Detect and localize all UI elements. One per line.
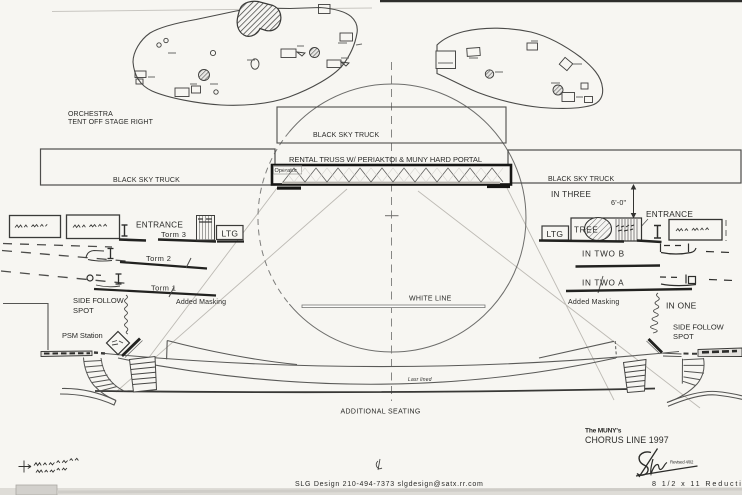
svg-text:SLG Design 210-494-7373 sl: SLG Design 210-494-7373 slgdesign@satx.r… [295, 481, 484, 488]
svg-text:CHORUS LINE 1997: CHORUS LINE 1997 [585, 435, 669, 445]
svg-text:TREE: TREE [574, 226, 599, 235]
svg-text:LTG: LTG [222, 229, 239, 239]
svg-text:ENTRANCE: ENTRANCE [646, 210, 693, 219]
svg-text:IN TWO A: IN TWO A [582, 279, 624, 288]
svg-text:Torm 3: Torm 3 [161, 230, 186, 239]
svg-text:IN TWO B: IN TWO B [582, 250, 625, 259]
svg-text:PSM Station: PSM Station [62, 331, 103, 340]
svg-text:IN THREE: IN THREE [551, 190, 591, 199]
svg-text:BLACK SKY TRUCK: BLACK SKY TRUCK [113, 177, 180, 184]
svg-text:Added Masking: Added Masking [176, 299, 226, 306]
svg-text:Added Masking: Added Masking [568, 299, 620, 306]
svg-text:SPOT: SPOT [673, 332, 694, 341]
svg-text:SIDE FOLLOW: SIDE FOLLOW [73, 296, 125, 305]
svg-text:The MUNY's: The MUNY's [585, 428, 622, 435]
svg-text:BLACK SKY TRUCK: BLACK SKY TRUCK [313, 132, 379, 139]
svg-text:TENT OFF STAGE RIGHT: TENT OFF STAGE RIGHT [68, 119, 154, 126]
svg-text:RENTAL TRUSS W/ PERIAKTOI & M: RENTAL TRUSS W/ PERIAKTOI & MUNY HARD PO… [289, 155, 482, 164]
svg-text:ADDITIONAL SEATING: ADDITIONAL SEATING [341, 409, 421, 416]
svg-text:IN ONE: IN ONE [666, 301, 697, 311]
svg-text:SIDE FOLLOW: SIDE FOLLOW [673, 323, 725, 332]
svg-text:WHITE LINE: WHITE LINE [409, 296, 452, 303]
svg-text:8 1/2 x 11 Reduction: 8 1/2 x 11 Reduction [652, 479, 742, 488]
svg-text:BLACK SKY TRUCK: BLACK SKY TRUCK [548, 176, 614, 183]
svg-text:ENTRANCE: ENTRANCE [136, 221, 183, 230]
svg-text:LTG: LTG [547, 229, 564, 239]
svg-text:ORCHESTRA: ORCHESTRA [68, 111, 113, 118]
svg-text:Lasr lined: Lasr lined [408, 377, 432, 383]
svg-text:Revised 4/02: Revised 4/02 [670, 460, 694, 465]
svg-text:6'-0": 6'-0" [611, 198, 627, 207]
svg-text:SPOT: SPOT [73, 306, 94, 315]
svg-text:Torm 2: Torm 2 [146, 254, 171, 263]
